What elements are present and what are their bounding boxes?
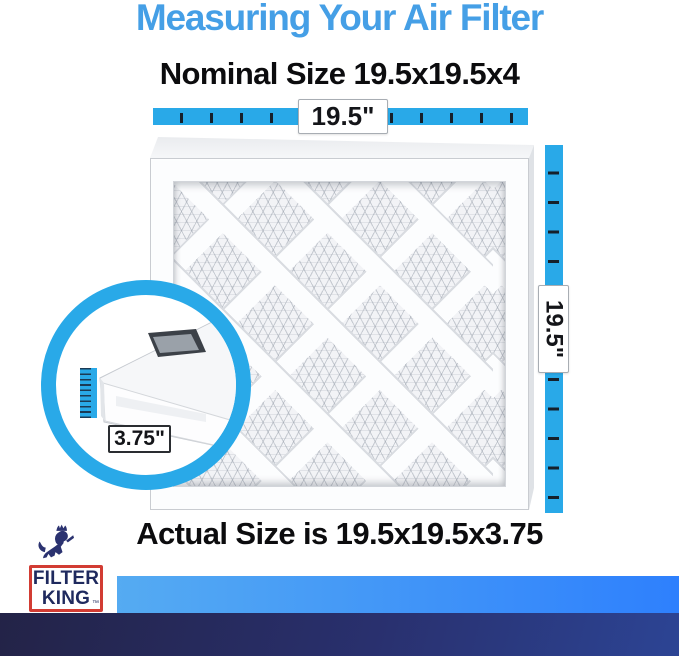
page-title: Measuring Your Air Filter: [0, 0, 679, 39]
logo-line-filter: FILTER: [33, 569, 99, 588]
bottom-navy-band: [0, 613, 679, 656]
height-value: 19.5": [540, 300, 568, 358]
depth-ruler-icon: [80, 368, 97, 418]
width-value: 19.5": [312, 101, 375, 132]
width-measurement-label: 19.5": [298, 99, 388, 134]
product-infographic: Measuring Your Air Filter Nominal Size 1…: [0, 0, 679, 656]
depth-value: 3.75": [114, 427, 165, 451]
depth-zoom-circle-icon: 3.75": [41, 280, 251, 490]
trademark-symbol: ™: [92, 600, 99, 607]
filter-top-face: [150, 136, 537, 159]
lion-crown-icon: [32, 522, 86, 568]
height-measurement-label: 19.5": [538, 285, 569, 373]
filter-king-logo: FILTER KING™: [22, 520, 112, 616]
nominal-size-heading: Nominal Size 19.5x19.5x4: [0, 56, 679, 92]
bottom-blue-stripe: [117, 576, 679, 613]
filter-king-wordmark: FILTER KING™: [29, 565, 103, 612]
logo-line-king: KING™: [42, 589, 90, 608]
depth-measurement-label: 3.75": [108, 425, 171, 453]
